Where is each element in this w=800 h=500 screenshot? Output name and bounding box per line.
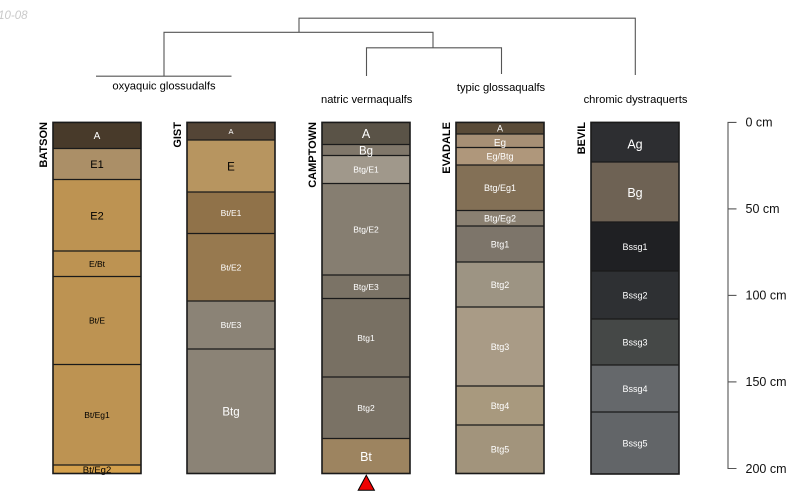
svg-text:150 cm: 150 cm	[746, 375, 787, 389]
svg-text:0 cm: 0 cm	[746, 116, 773, 130]
svg-text:100 cm: 100 cm	[746, 289, 787, 303]
svg-text:Btg2: Btg2	[491, 280, 510, 290]
svg-text:A: A	[497, 124, 503, 134]
svg-text:Bg: Bg	[359, 145, 373, 157]
svg-text:Btg4: Btg4	[491, 401, 510, 411]
svg-text:BEVIL: BEVIL	[576, 122, 588, 155]
svg-text:Bt/E: Bt/E	[89, 316, 105, 326]
svg-text:Btg2: Btg2	[357, 403, 375, 413]
svg-text:Btg1: Btg1	[357, 333, 375, 343]
svg-text:GIST: GIST	[172, 122, 184, 148]
svg-text:Btg/Eg2: Btg/Eg2	[484, 214, 516, 224]
svg-text:Bt/Eg1: Bt/Eg1	[84, 410, 110, 420]
svg-text:200 cm: 200 cm	[746, 462, 787, 476]
svg-text:Eg: Eg	[494, 138, 506, 149]
svg-text:Bssg5: Bssg5	[622, 438, 647, 448]
svg-text:chromic dystraquerts: chromic dystraquerts	[584, 94, 688, 106]
svg-text:Ag: Ag	[627, 137, 642, 151]
svg-text:50 cm: 50 cm	[746, 202, 780, 216]
svg-text:Bssg4: Bssg4	[622, 384, 647, 394]
svg-text:E2: E2	[90, 210, 103, 222]
svg-text:Btg5: Btg5	[491, 445, 510, 455]
svg-text:E/Bt: E/Bt	[89, 259, 106, 269]
svg-text:Bt: Bt	[360, 450, 372, 464]
svg-text:BATSON: BATSON	[38, 122, 50, 168]
svg-text:Bt/E1: Bt/E1	[221, 208, 242, 218]
svg-text:Bssg2: Bssg2	[622, 290, 647, 300]
svg-text:A: A	[94, 131, 101, 142]
svg-text:A: A	[228, 127, 233, 136]
svg-text:Bssg1: Bssg1	[622, 242, 647, 252]
svg-text:Btg/Eg1: Btg/Eg1	[484, 183, 516, 193]
svg-text:E1: E1	[90, 159, 103, 171]
svg-text:Bt/E2: Bt/E2	[221, 263, 242, 273]
svg-text:EVADALE: EVADALE	[441, 122, 453, 174]
svg-text:Bg: Bg	[627, 186, 642, 200]
svg-text:Bt/E3: Bt/E3	[221, 320, 242, 330]
svg-text:E: E	[227, 161, 235, 173]
svg-text:natric vermaqualfs: natric vermaqualfs	[321, 94, 413, 106]
svg-text:Btg3: Btg3	[491, 342, 510, 352]
svg-text:CAMPTOWN: CAMPTOWN	[307, 122, 319, 188]
svg-text:2010-08: 2010-08	[0, 10, 28, 22]
svg-text:typic glossaqualfs: typic glossaqualfs	[457, 82, 546, 94]
svg-text:A: A	[362, 127, 371, 141]
svg-text:Btg/E3: Btg/E3	[353, 282, 379, 292]
svg-text:Btg: Btg	[222, 407, 239, 419]
svg-text:Bt/Eg2: Bt/Eg2	[83, 465, 112, 476]
svg-text:oxyaquic glossudalfs: oxyaquic glossudalfs	[112, 81, 216, 93]
svg-text:Btg/E1: Btg/E1	[353, 165, 379, 175]
svg-text:Bssg3: Bssg3	[622, 337, 647, 347]
svg-text:Eg/Btg: Eg/Btg	[486, 152, 513, 162]
svg-text:Btg/E2: Btg/E2	[353, 225, 379, 235]
svg-text:Btg1: Btg1	[491, 239, 510, 249]
